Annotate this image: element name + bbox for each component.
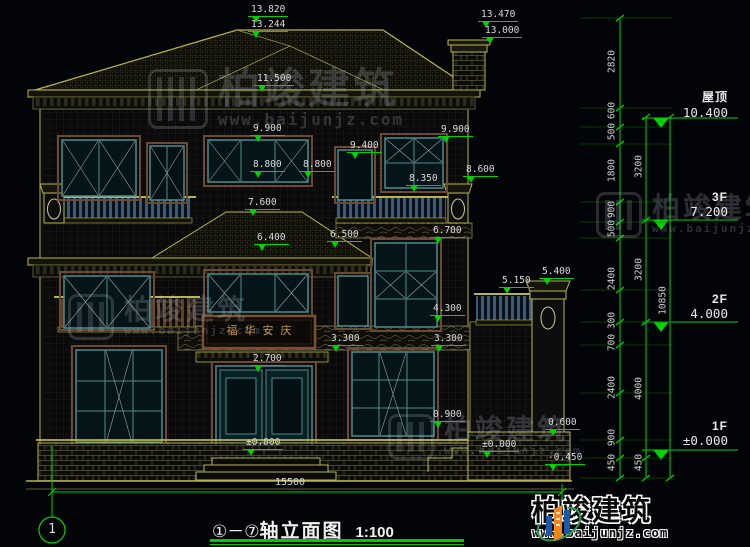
level-label: 13.470 [478, 9, 518, 22]
level-label: 8.350 [406, 173, 441, 186]
level-label: 4.300 [430, 303, 465, 316]
floor-value: 7.200 [648, 204, 728, 219]
extension-lines [580, 18, 672, 478]
floor-value: ±0.000 [648, 433, 728, 448]
title-underline [210, 539, 464, 542]
level-label: 2.700 [250, 353, 285, 366]
balcony-3f-right [332, 197, 450, 223]
dim-label: 1800 [607, 149, 618, 193]
level-label: 11.500 [254, 73, 294, 86]
floor-value: 4.000 [648, 306, 728, 321]
floor-marker: 屋顶 10.400 [648, 88, 728, 120]
level-label: 6.400 [254, 232, 289, 245]
level-label: 13.820 [248, 4, 288, 17]
level-label: 8.800 [300, 159, 335, 172]
dim-label: 3200 [634, 145, 645, 189]
level-label: 6.700 [430, 225, 465, 238]
dim-label: 3200 [634, 248, 645, 292]
dim-label: 450 [634, 441, 645, 485]
dim-label: 700 [607, 321, 618, 365]
level-label: ±0.000 [243, 437, 283, 450]
floor-name: 2F [648, 292, 728, 306]
brand-logo: 柏竣建筑 www.baijunjz.com [532, 497, 668, 540]
level-label: 9.900 [438, 124, 473, 137]
level-label: 0.600 [545, 417, 580, 430]
floor-marker: 1F ±0.000 [648, 419, 728, 448]
floor-marker: 3F 7.200 [648, 190, 728, 219]
title-underline-thin [210, 544, 464, 545]
cad-canvas: 柏竣建筑 www.baijunjz.com 柏竣建筑 www.baijunjz.… [0, 0, 750, 547]
level-label: 8.800 [250, 159, 285, 172]
floor-name: 1F [648, 419, 728, 433]
floor-name: 3F [648, 190, 728, 204]
axis-bubble-1: 1 [45, 522, 59, 537]
overall-width-dim: 15500 [250, 477, 330, 488]
level-label: 13.244 [248, 19, 288, 32]
level-label: 5.400 [539, 266, 574, 279]
floor-marker: 2F 4.000 [648, 292, 728, 321]
level-label: 0.900 [430, 409, 465, 422]
dim-label: 2820 [607, 40, 618, 84]
dim-label: 2400 [607, 366, 618, 410]
brand-logo-icon [532, 497, 590, 547]
level-label: 9.400 [347, 140, 382, 153]
chimney [448, 40, 490, 90]
level-label: -0.450 [545, 452, 585, 465]
level-label: 8.600 [463, 164, 498, 177]
level-label: 3.300 [431, 333, 466, 346]
level-label: 3.300 [328, 333, 363, 346]
floor-name: 屋顶 [648, 88, 728, 105]
floor-value: 10.400 [648, 105, 728, 120]
dim-label: 4000 [634, 367, 645, 411]
dim-label: 450 [607, 441, 618, 485]
level-label: 13.000 [482, 25, 522, 38]
dim-label: 500 [607, 207, 618, 251]
level-label: 7.600 [245, 197, 280, 210]
entrance-plaque-text: 福华安庆 [207, 322, 311, 338]
level-label: 6.500 [327, 229, 362, 242]
level-label: ±0.000 [479, 439, 519, 452]
dim-label: 2400 [607, 257, 618, 301]
dim-label: 500 [607, 110, 618, 154]
level-label: 9.900 [250, 123, 285, 136]
level-label: 5.150 [499, 275, 534, 288]
